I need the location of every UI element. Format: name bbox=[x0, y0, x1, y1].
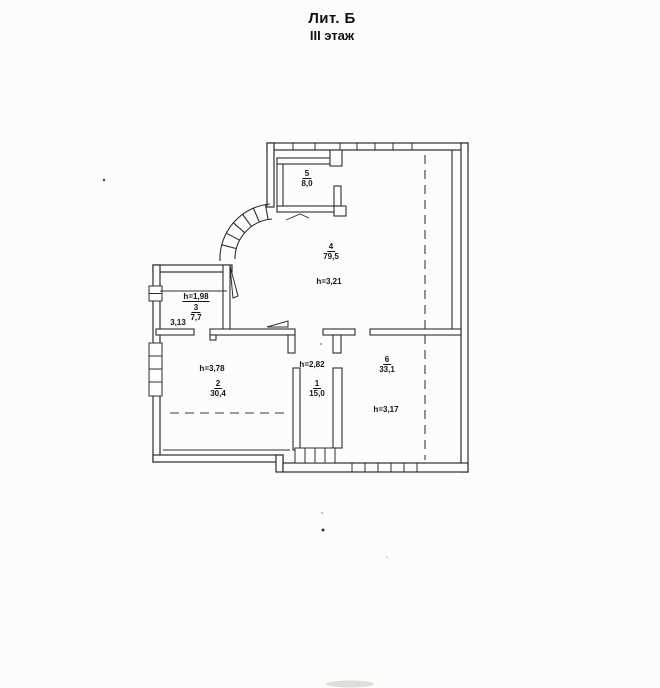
room6-label: 6 33,1 bbox=[379, 355, 395, 374]
room1-area: 15,0 bbox=[309, 389, 325, 398]
room2-area: 30,4 bbox=[210, 389, 226, 398]
room6-number: 6 bbox=[383, 355, 391, 365]
floor-plan-drawing bbox=[0, 0, 660, 688]
room2-number: 2 bbox=[214, 379, 222, 389]
room3-height-label: h=1,98 bbox=[182, 292, 209, 302]
stair-hatch bbox=[222, 205, 268, 249]
room2-top-wall bbox=[210, 329, 295, 335]
scan-specks bbox=[103, 179, 388, 688]
scan-smudge bbox=[326, 681, 374, 688]
room5-pier-foot bbox=[334, 206, 346, 216]
wall-bottom-right bbox=[283, 463, 468, 472]
door-mark-room5 bbox=[286, 214, 309, 220]
room3-label: 3 7,7 bbox=[190, 303, 201, 322]
windows bbox=[149, 286, 335, 463]
room4-label: 4 79,5 bbox=[323, 242, 339, 261]
scan-speck bbox=[103, 179, 105, 181]
scanned-floor-plan-page: Лит. Б III этаж bbox=[0, 0, 660, 688]
room4-number: 4 bbox=[327, 242, 335, 252]
room1-top-wall bbox=[323, 329, 355, 335]
room3-bottom-wall bbox=[156, 329, 194, 335]
room4-height-label: h=3,21 bbox=[316, 277, 341, 286]
room5-number: 5 bbox=[303, 169, 311, 179]
door-leaves bbox=[230, 214, 309, 327]
room4-area: 79,5 bbox=[323, 252, 339, 261]
room1-left-wall bbox=[293, 368, 300, 450]
room2-top-wall-nub bbox=[210, 335, 216, 340]
room2-height-label: h=3,78 bbox=[199, 364, 224, 373]
room6-top-wall bbox=[370, 329, 461, 335]
door-leaf-room3 bbox=[230, 266, 238, 298]
window-bay-room1 bbox=[295, 448, 335, 463]
window-left-upper bbox=[149, 286, 162, 301]
room1-right-stub bbox=[333, 335, 341, 353]
wall-top bbox=[267, 143, 468, 150]
scan-speck bbox=[321, 512, 323, 514]
room5-label: 5 8,0 bbox=[301, 169, 312, 188]
room3-number: 3 bbox=[192, 303, 200, 313]
door-leaf-room2 bbox=[267, 321, 288, 327]
wall-bottom-left bbox=[153, 455, 283, 462]
turret-wall bbox=[220, 204, 272, 261]
scan-speck bbox=[320, 343, 322, 345]
wall-right bbox=[461, 143, 468, 472]
room3-note-label: 3,13 bbox=[170, 318, 186, 327]
room6-area: 33,1 bbox=[379, 365, 395, 374]
window-left-lower bbox=[149, 343, 162, 396]
turret-inner-arc bbox=[235, 219, 272, 259]
room5-bottom-wall bbox=[277, 206, 341, 212]
room6-height-label: h=3,17 bbox=[373, 405, 398, 414]
room1-room6-wall bbox=[333, 368, 342, 448]
room5-area: 8,0 bbox=[301, 179, 312, 188]
scan-speck bbox=[386, 556, 388, 558]
room3-area: 7,7 bbox=[190, 313, 201, 322]
room1-number: 1 bbox=[313, 379, 321, 389]
room1-height-label: h=2,82 bbox=[299, 360, 324, 369]
wall-bottom-step bbox=[276, 455, 283, 472]
room2-label: 2 30,4 bbox=[210, 379, 226, 398]
room3-right-wall bbox=[223, 265, 230, 335]
room1-label: 1 15,0 bbox=[309, 379, 325, 398]
scan-speck bbox=[322, 529, 325, 532]
room5-top-wall bbox=[277, 158, 334, 164]
wall-ticks bbox=[293, 143, 417, 472]
wall-upper-left bbox=[267, 143, 274, 207]
room5-left-wall bbox=[277, 158, 283, 212]
room1-left-stub bbox=[288, 335, 295, 353]
room5-topright-stub bbox=[330, 150, 342, 166]
wall-ext-top bbox=[153, 265, 232, 272]
